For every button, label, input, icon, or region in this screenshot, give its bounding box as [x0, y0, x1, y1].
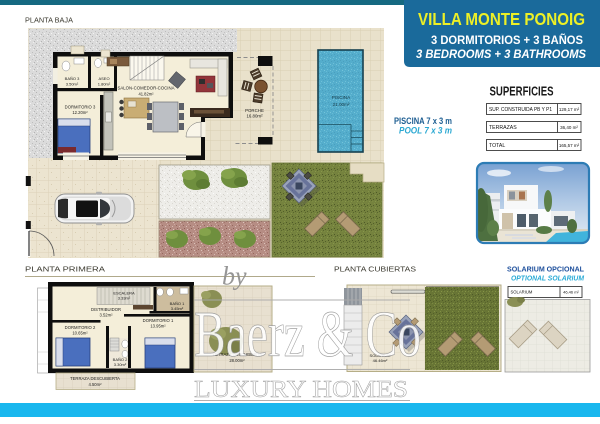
svg-text:SUP. CONSTRUIDA PB Y P1: SUP. CONSTRUIDA PB Y P1	[489, 107, 552, 113]
svg-text:TERRAZAS: TERRAZAS	[489, 125, 517, 131]
svg-text:13.95m²: 13.95m²	[150, 324, 166, 329]
svg-text:VILLA MONTE PONOIG: VILLA MONTE PONOIG	[418, 9, 585, 29]
svg-text:PLANTA CUBIERTAS: PLANTA CUBIERTAS	[334, 267, 416, 274]
svg-text:OPTIONAL SOLARIUM: OPTIONAL SOLARIUM	[511, 274, 585, 283]
svg-text:16.80m²: 16.80m²	[246, 114, 263, 119]
svg-text:PISCINA: PISCINA	[332, 95, 351, 100]
svg-text:ASEO: ASEO	[98, 76, 109, 81]
svg-text:PORCHE: PORCHE	[245, 108, 264, 113]
svg-text:46,46 m²: 46,46 m²	[563, 290, 579, 295]
svg-text:3 DORMITORIOS + 3 BAÑOS: 3 DORMITORIOS + 3 BAÑOS	[431, 32, 583, 47]
svg-text:129,17 m²: 129,17 m²	[559, 107, 580, 112]
svg-text:41.82m²: 41.82m²	[138, 92, 154, 97]
svg-text:SOLARIUM: SOLARIUM	[511, 290, 533, 295]
svg-text:BAÑO 3: BAÑO 3	[65, 76, 80, 81]
svg-text:165,57 m²: 165,57 m²	[559, 143, 580, 148]
svg-text:4.50m²: 4.50m²	[88, 382, 102, 387]
svg-text:10.65m²: 10.65m²	[72, 331, 88, 336]
svg-text:by: by	[222, 262, 247, 291]
svg-text:12.20m²: 12.20m²	[72, 110, 88, 115]
svg-text:PISCINA 7 x 3 m: PISCINA 7 x 3 m	[394, 116, 452, 126]
svg-text:3 BEDROOMS + 3 BATHROOMS: 3 BEDROOMS + 3 BATHROOMS	[416, 47, 586, 61]
svg-text:DORMITORIO 2: DORMITORIO 2	[65, 325, 96, 330]
svg-text:POOL 7 x 3 m: POOL 7 x 3 m	[399, 126, 452, 136]
svg-text:TOTAL: TOTAL	[489, 143, 505, 149]
svg-text:3.30m²: 3.30m²	[114, 362, 127, 367]
svg-text:3.45m²: 3.45m²	[171, 306, 184, 311]
svg-text:DISTRIBUIDOR: DISTRIBUIDOR	[91, 307, 121, 312]
svg-text:DORMITORIO 1: DORMITORIO 1	[143, 318, 174, 323]
svg-text:21.00m²: 21.00m²	[333, 102, 350, 107]
svg-text:TERRAZA DESCUBIERTA: TERRAZA DESCUBIERTA	[70, 376, 120, 381]
svg-text:SUPERFICIES: SUPERFICIES	[490, 85, 554, 99]
svg-text:36,40 m²: 36,40 m²	[560, 125, 578, 130]
svg-text:3.50m²: 3.50m²	[66, 82, 79, 87]
svg-text:SALON-COMEDOR-COCINA: SALON-COMEDOR-COCINA	[118, 86, 175, 91]
svg-text:3.33m²: 3.33m²	[118, 296, 131, 301]
svg-text:SOLARIUM OPCIONAL: SOLARIUM OPCIONAL	[507, 265, 584, 274]
svg-text:DORMITORIO 3: DORMITORIO 3	[65, 105, 96, 110]
svg-text:3.52m²: 3.52m²	[99, 313, 113, 318]
svg-text:1.80m²: 1.80m²	[98, 82, 111, 87]
svg-text:Baerz & Co: Baerz & Co	[194, 298, 421, 371]
svg-text:PLANTA BAJA: PLANTA BAJA	[25, 18, 73, 25]
svg-text:LUXURY HOMES: LUXURY HOMES	[194, 377, 408, 403]
svg-text:PLANTA PRIMERA: PLANTA PRIMERA	[25, 267, 105, 274]
